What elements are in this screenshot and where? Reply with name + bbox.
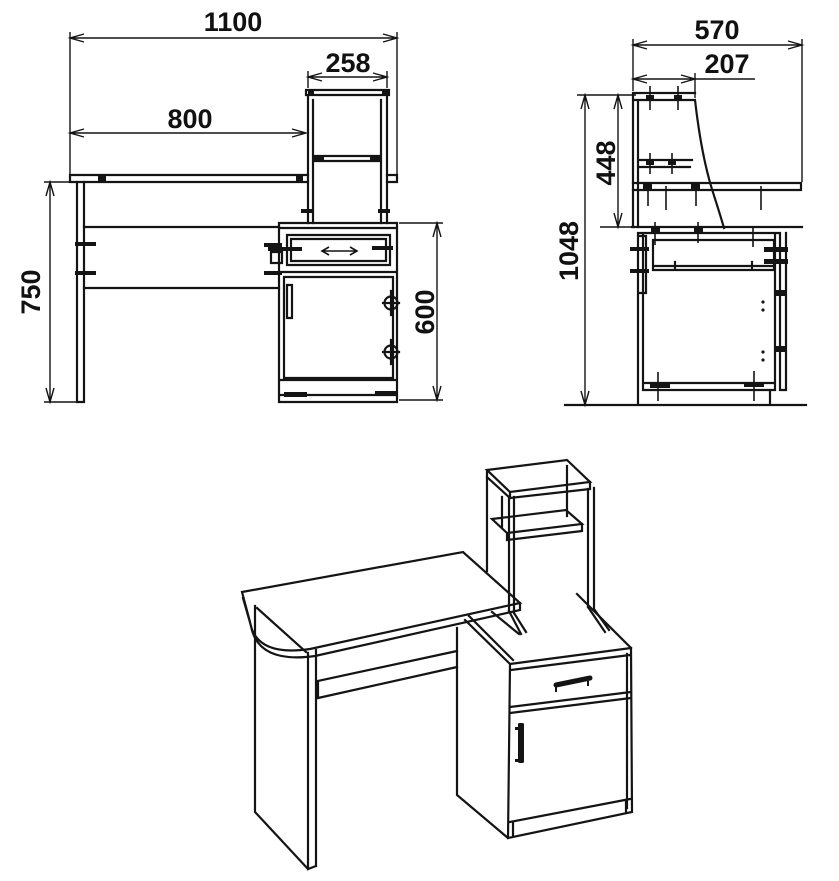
dim-label-desk-height: 750: [16, 269, 46, 314]
dim-label-overall-depth: 570: [694, 15, 739, 45]
dim-label-shelf-width: 258: [325, 48, 370, 78]
screw-marks-side: [648, 86, 761, 401]
modesty-rail-front: [84, 227, 279, 288]
technical-drawing-page: 1100 258 800 750 600: [0, 0, 839, 881]
dim-desktop-span: 800: [70, 104, 306, 137]
dim-label-overall-width: 1100: [204, 7, 263, 37]
dim-shelf-width: 258: [308, 48, 387, 88]
dim-desk-height: 750: [16, 182, 78, 402]
furniture-technical-drawing: 1100 258 800 750 600: [0, 0, 839, 881]
drawer-slide-arrow-icon: [322, 247, 357, 255]
dim-label-shelf-depth: 207: [704, 49, 749, 79]
drawer-handle: [556, 678, 590, 685]
dim-label-pedestal-height: 600: [410, 289, 440, 334]
dim-pedestal-height: 600: [399, 223, 443, 400]
side-view: 570 207 448 1048: [554, 15, 806, 405]
dim-label-desktop-span: 800: [167, 104, 212, 134]
desktop-front: [70, 175, 397, 182]
dim-shelf-depth: 207: [633, 49, 755, 98]
iso-pedestal: [457, 594, 632, 838]
shelf-unit-side: [633, 93, 724, 228]
left-leg-front: [77, 182, 84, 402]
front-connector-marks: [75, 91, 397, 397]
isometric-view: [242, 460, 632, 869]
door-handle: [515, 723, 524, 763]
door-front: [284, 277, 393, 378]
dim-overall-depth: 570: [633, 15, 802, 182]
iso-desktop: [242, 552, 520, 657]
front-view: 1100 258 800 750 600: [16, 7, 443, 402]
desktop-side: [633, 183, 801, 190]
iso-modesty-rail: [318, 651, 457, 698]
dim-shelf-height: 448: [591, 95, 632, 227]
dim-label-overall-height: 1048: [554, 221, 584, 281]
dim-label-shelf-height: 448: [591, 140, 621, 185]
